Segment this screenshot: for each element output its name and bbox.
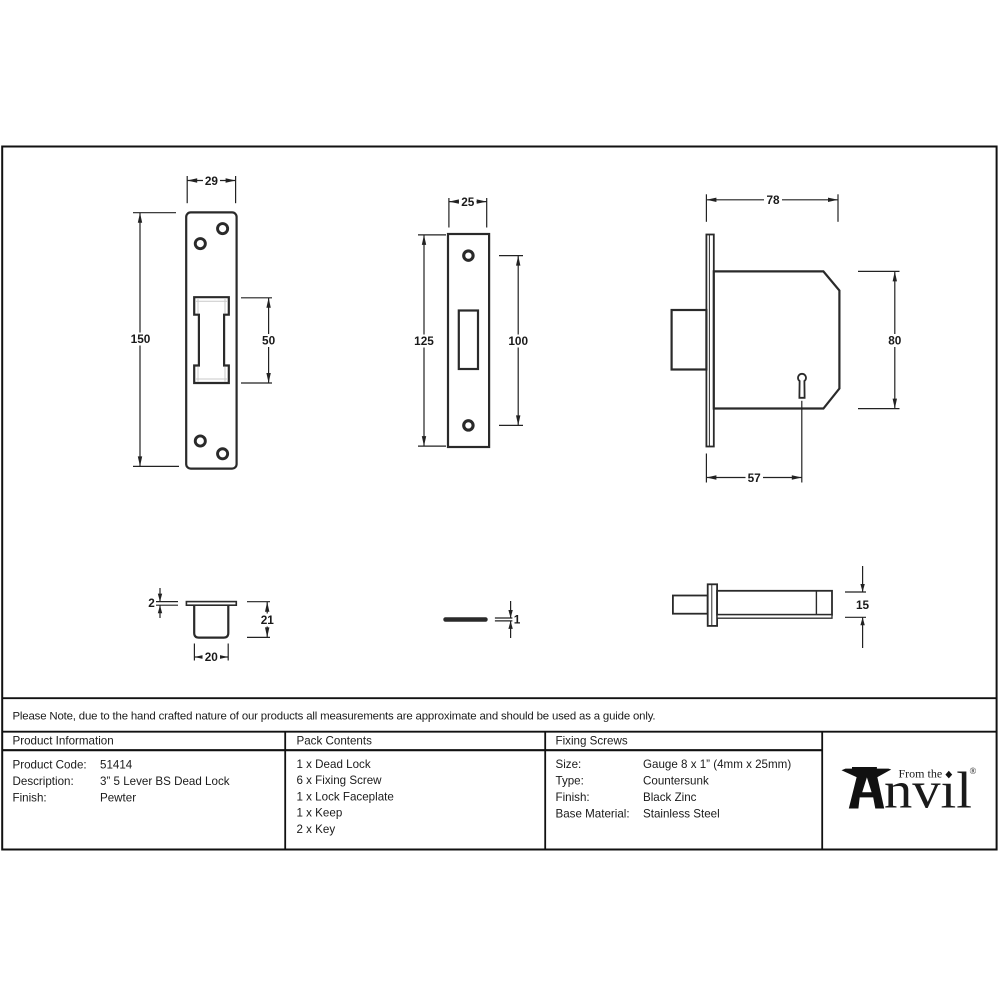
svg-text:3” 5 Lever BS Dead Lock: 3” 5 Lever BS Dead Lock [100, 775, 230, 788]
svg-text:1: 1 [514, 613, 521, 627]
svg-text:80: 80 [888, 334, 902, 348]
svg-text:Fixing Screws: Fixing Screws [556, 735, 628, 748]
svg-text:20: 20 [205, 650, 219, 664]
svg-text:100: 100 [508, 334, 528, 348]
svg-text:78: 78 [766, 193, 780, 207]
svg-text:2 x Key: 2 x Key [297, 823, 336, 836]
svg-text:Black Zinc: Black Zinc [643, 791, 697, 804]
svg-text:150: 150 [131, 332, 151, 346]
svg-text:Gauge 8 x 1” (4mm x 25mm): Gauge 8 x 1” (4mm x 25mm) [643, 758, 791, 771]
svg-text:Description:: Description: [13, 775, 74, 788]
svg-text:25: 25 [461, 195, 475, 209]
svg-text:®: ® [970, 766, 977, 776]
svg-text:2: 2 [148, 596, 155, 610]
svg-text:1 x Keep: 1 x Keep [297, 807, 343, 820]
svg-text:From the: From the [899, 767, 943, 781]
svg-text:1 x Lock Faceplate: 1 x Lock Faceplate [297, 790, 394, 803]
svg-text:Pewter: Pewter [100, 792, 136, 805]
svg-text:Product Code:: Product Code: [13, 759, 87, 772]
svg-text:Size:: Size: [556, 758, 582, 771]
svg-text:15: 15 [856, 598, 870, 612]
svg-text:50: 50 [262, 334, 276, 348]
svg-text:Base Material:: Base Material: [556, 808, 630, 821]
svg-text:125: 125 [414, 334, 434, 348]
svg-text:1 x Dead Lock: 1 x Dead Lock [297, 758, 371, 771]
svg-text:Please Note, due to the hand c: Please Note, due to the hand crafted nat… [13, 711, 656, 723]
svg-text:Product Information: Product Information [13, 735, 114, 748]
svg-text:Finish:: Finish: [13, 792, 47, 805]
svg-text:6 x Fixing Screw: 6 x Fixing Screw [297, 774, 383, 787]
svg-text:51414: 51414 [100, 759, 133, 772]
svg-text:29: 29 [205, 174, 219, 188]
svg-text:Finish:: Finish: [556, 791, 590, 804]
svg-text:57: 57 [748, 471, 762, 485]
svg-text:Type:: Type: [556, 775, 584, 788]
svg-text:21: 21 [261, 613, 275, 627]
svg-text:Countersunk: Countersunk [643, 775, 709, 788]
svg-text:Pack Contents: Pack Contents [297, 735, 373, 748]
svg-text:Stainless Steel: Stainless Steel [643, 808, 720, 821]
